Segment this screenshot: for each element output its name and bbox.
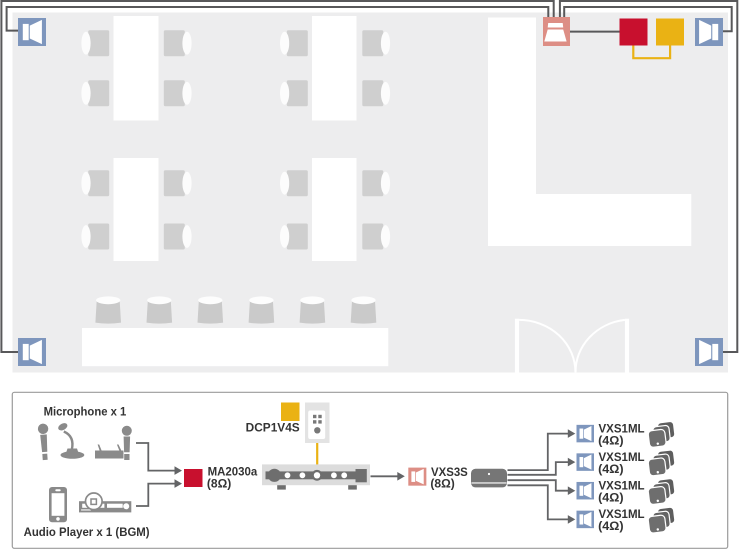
svg-text:(4Ω): (4Ω) <box>598 492 624 505</box>
svg-text:(8Ω): (8Ω) <box>207 478 232 491</box>
svg-text:(4Ω): (4Ω) <box>598 435 624 448</box>
svg-text:(4Ω): (4Ω) <box>598 463 624 476</box>
svg-text:(8Ω): (8Ω) <box>430 478 455 491</box>
svg-text:Audio Player x 1 (BGM): Audio Player x 1 (BGM) <box>24 525 150 539</box>
svg-text:(4Ω): (4Ω) <box>598 520 624 533</box>
svg-text:DCP1V4S: DCP1V4S <box>246 422 300 435</box>
svg-text:Microphone x 1: Microphone x 1 <box>44 404 127 418</box>
